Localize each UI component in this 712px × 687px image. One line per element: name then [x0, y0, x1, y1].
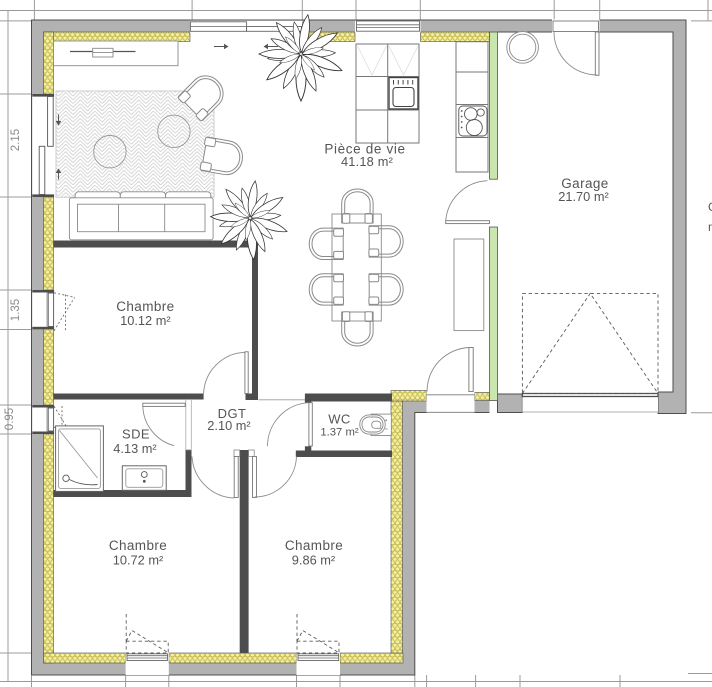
svg-text:Chambre: Chambre: [285, 538, 343, 553]
svg-text:21.70 m²: 21.70 m²: [558, 189, 609, 204]
svg-text:9.86 m²: 9.86 m²: [292, 552, 336, 567]
svg-text:41.18 m²: 41.18 m²: [341, 154, 394, 169]
svg-text:2.15: 2.15: [10, 129, 22, 151]
svg-text:WC: WC: [328, 412, 350, 427]
svg-text:Chambre: Chambre: [116, 299, 174, 314]
svg-text:G: G: [708, 200, 712, 214]
svg-text:10.12 m²: 10.12 m²: [120, 313, 171, 328]
svg-text:0.95: 0.95: [4, 408, 16, 430]
svg-text:1.37 m²: 1.37 m²: [320, 426, 359, 438]
svg-text:Chambre: Chambre: [109, 538, 167, 553]
svg-text:m: m: [708, 220, 712, 234]
svg-text:10.72 m²: 10.72 m²: [113, 552, 164, 567]
svg-text:2.10 m²: 2.10 m²: [207, 418, 251, 433]
svg-text:4.13 m²: 4.13 m²: [113, 441, 157, 456]
svg-text:1.35: 1.35: [10, 299, 22, 321]
svg-text:SDE: SDE: [122, 427, 150, 442]
